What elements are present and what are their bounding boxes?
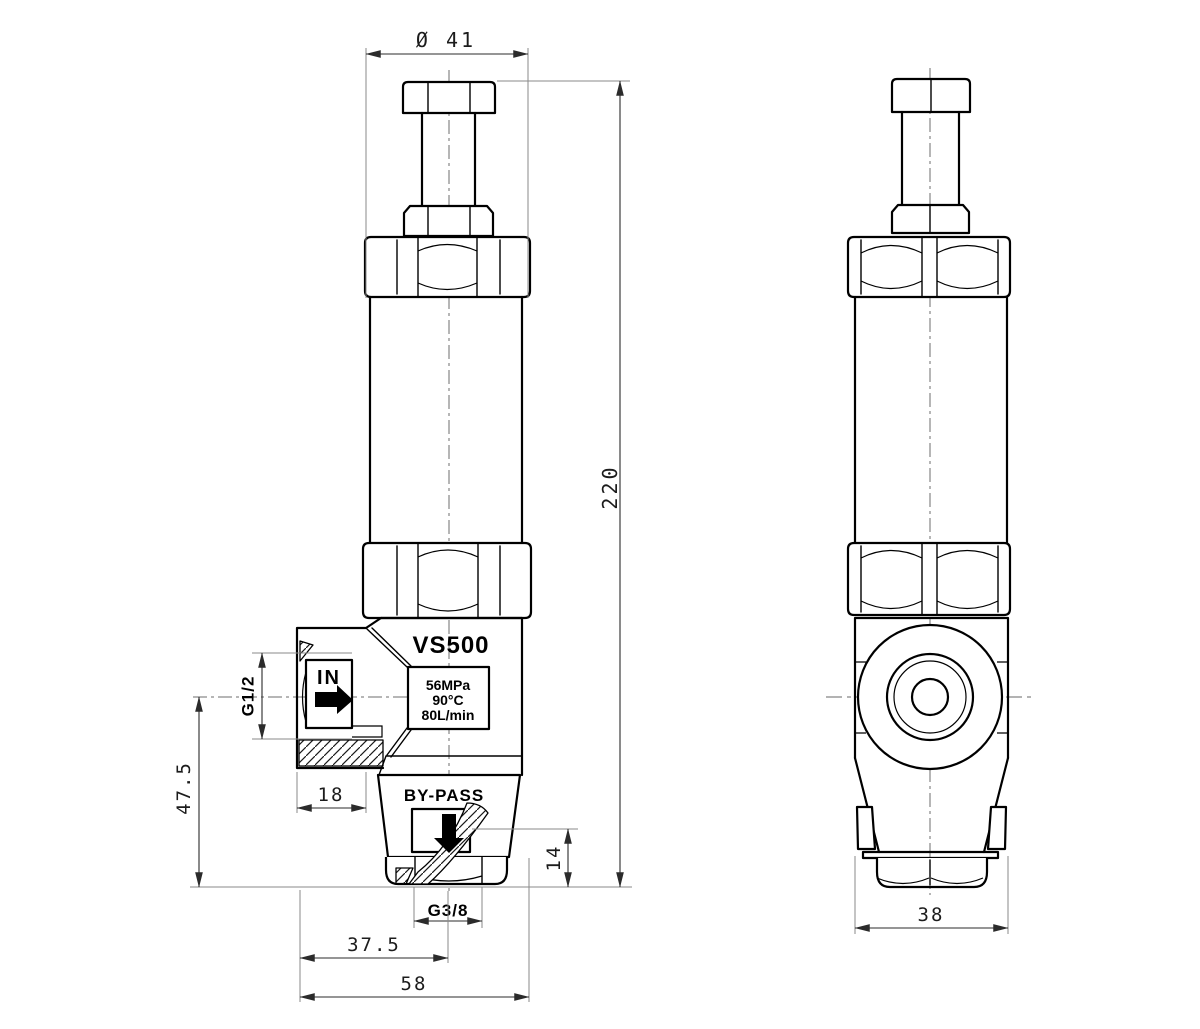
h14-value: 14 [543,845,565,872]
model-label: VS500 [412,632,489,659]
w38-value: 38 [918,904,945,926]
side-upper-hex-nut [848,237,1010,297]
d18-value: 18 [318,784,345,806]
front-adjust-cap [403,82,495,113]
sheet-background [0,0,1200,1029]
side-left-lug [857,807,875,849]
side-right-lug [988,807,1006,849]
dia41-value: Ø 41 [416,28,476,52]
inlet-label: IN [317,667,341,689]
front-lower-hex-nut [363,543,531,618]
front-lock-nut [404,206,493,236]
bypass-label: BY-PASS [404,786,484,805]
side-port-boss-circle [858,625,1002,769]
drawing-sheet: VS500 56MPa 90°C 80L/min IN BY-PASS Ø 41… [0,0,1200,1029]
valve-drawing-svg: VS500 56MPa 90°C 80L/min IN BY-PASS Ø 41… [0,0,1200,1029]
front-section-hatch-lower [299,740,383,766]
spec-temperature: 90°C [432,692,463,708]
d37-value: 37.5 [347,934,401,956]
h220-value: 220 [598,464,622,509]
spec-pressure: 56MPa [426,677,471,693]
g12-value: G1/2 [239,676,258,717]
front-upper-hex-nut [365,237,530,297]
h47-value: 47.5 [173,761,195,815]
spec-flow: 80L/min [422,707,475,723]
d58-value: 58 [401,973,428,995]
